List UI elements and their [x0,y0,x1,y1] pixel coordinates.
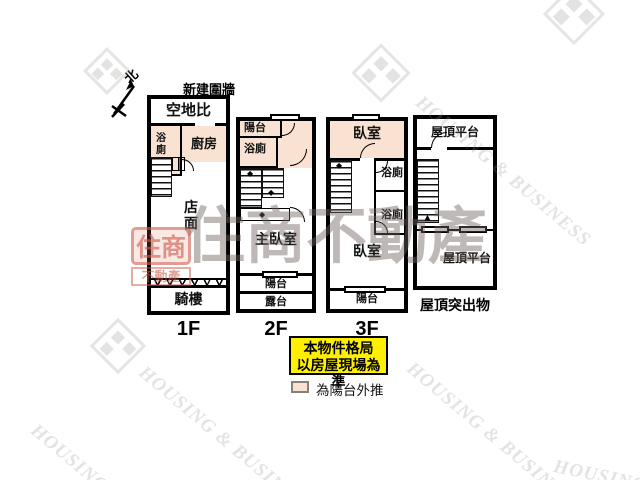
room-open-space-ratio: 空地比 [151,102,226,119]
brand-en-watermark: HOUSING & BUSINESS [26,420,210,480]
wall [276,138,278,166]
room-bath-label: 浴廁 [156,133,169,156]
floor-label-1f: 1F [147,318,230,341]
wall [240,291,312,294]
room-balcony-top-label: 陽台 [244,122,266,135]
room-balcony-label: 陽台 [240,278,312,291]
window-symbol [270,114,300,121]
floorplan-page: HOUSING & BUSINESS HOUSING & BUSINESS HO… [0,0,640,480]
wall [240,136,280,138]
stairs [151,157,172,197]
wall [417,147,431,150]
brand-stamp-watermark: 住商 不動產 [131,227,191,286]
wall [374,190,404,192]
room-bath-label: 浴廁 [244,143,266,156]
floor-label-roof: 屋頂突出物 [405,295,505,315]
brand-cjk-watermark: 住商不動產 [184,206,489,267]
room-kitchen-label: 廚房 [191,137,217,152]
legend-label: 為陽台外推 [316,379,384,399]
room-terrace-label: 露台 [240,296,312,309]
stair-arrow-icon: ◆ [336,162,342,170]
brand-diamond-watermark [351,43,410,102]
stair-arrow-icon: ◆ [268,189,274,197]
stair-arrow-icon: ◆ [247,170,253,178]
brand-diamond-watermark [543,0,605,45]
legend-balcony-swatch [291,381,309,393]
window-symbol [262,271,298,278]
window-symbol [352,114,380,121]
stair-landing [172,157,185,171]
brand-stamp-top: 住商 [131,227,191,265]
room-arcade-label: 騎樓 [151,291,226,307]
room-balcony-label: 陽台 [330,293,404,306]
notice-box: 本物件格局 以房屋現場為準 [289,336,388,375]
notice-line1: 本物件格局 [291,340,386,357]
brand-en-watermark: HOUSING P [551,456,640,480]
brand-diamond-watermark [90,318,147,375]
brand-stamp-bottom: 不動產 [131,267,191,286]
room-bedroom-top-label: 臥室 [330,125,404,141]
window-symbol [344,286,386,293]
